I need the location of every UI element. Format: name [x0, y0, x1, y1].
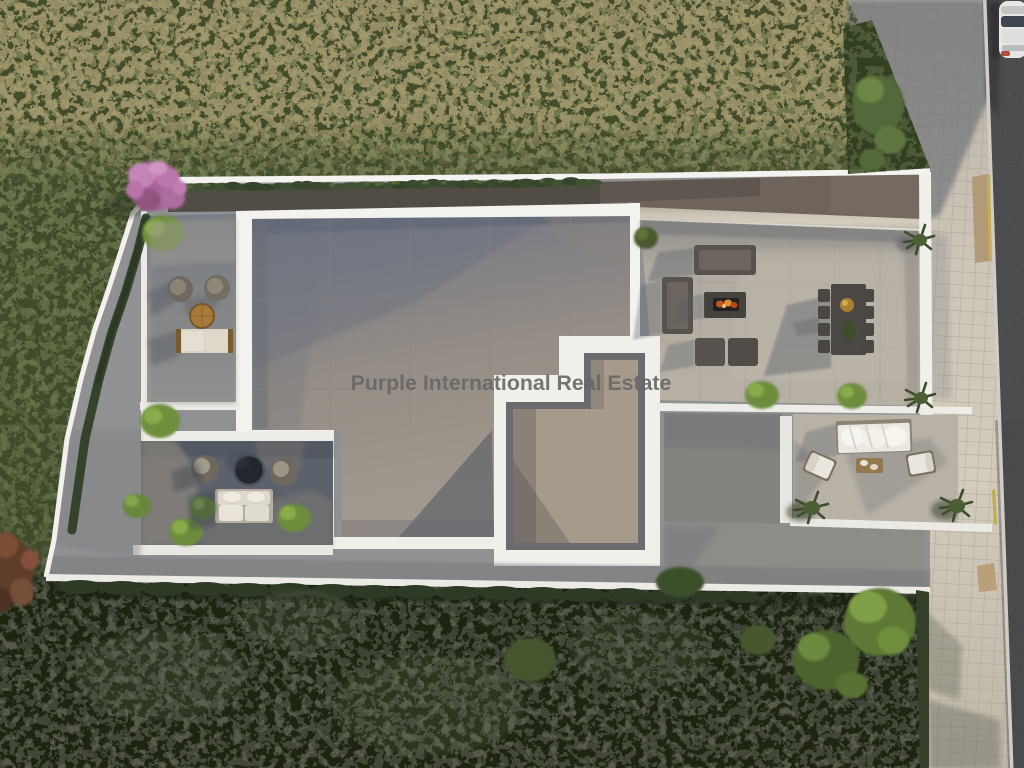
svg-text:Purple International Real Esta: Purple International Real Estate: [351, 371, 672, 395]
